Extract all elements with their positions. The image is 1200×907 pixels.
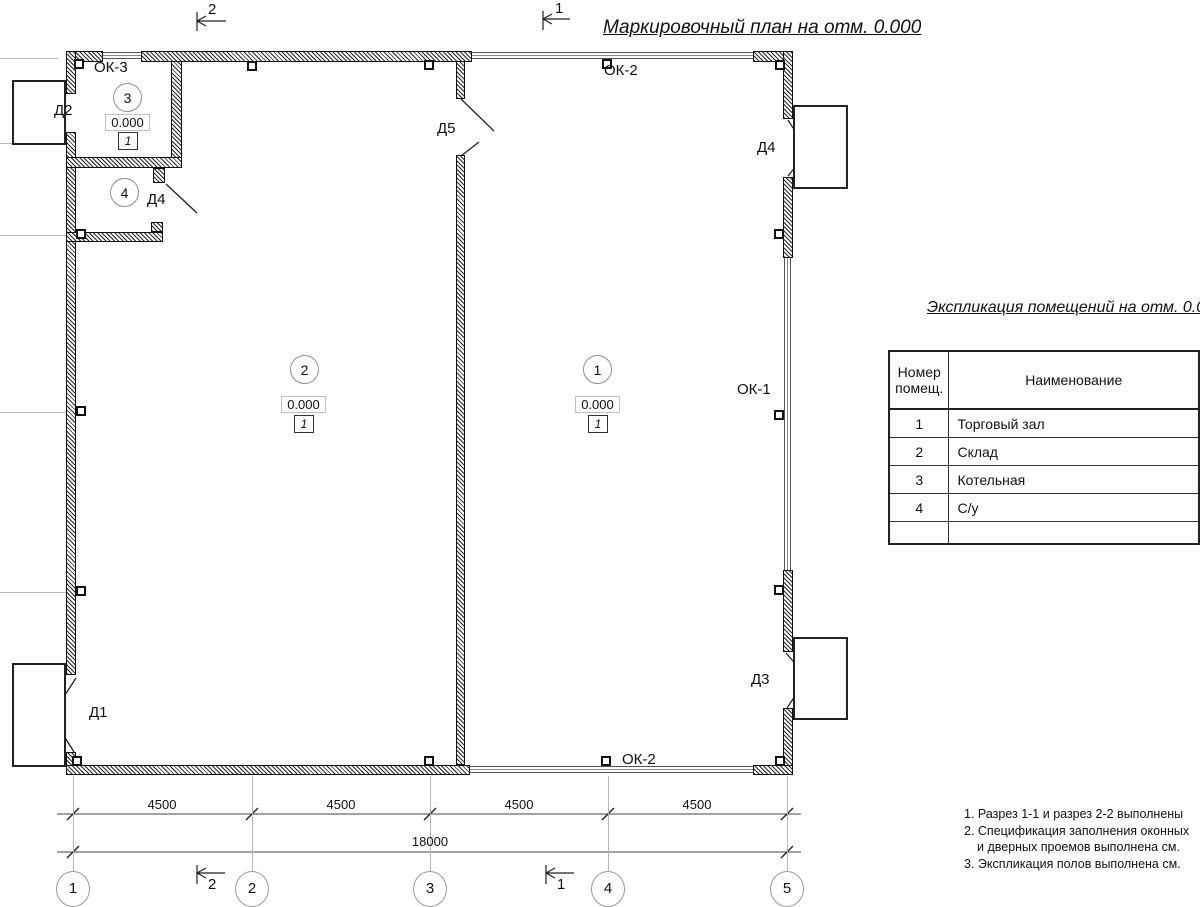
schedule-title: Экспликация помещений на отм. 0.000 bbox=[927, 299, 1200, 317]
dimension-bay-3: 4500 bbox=[505, 797, 534, 812]
window-label-ok2-top: ОК-2 bbox=[604, 62, 638, 79]
grid-extension-1 bbox=[73, 776, 74, 871]
note-line: 1. Разрез 1-1 и разрез 2-2 выполнены bbox=[964, 806, 1189, 823]
porch-d4 bbox=[793, 105, 848, 189]
column-marker bbox=[76, 229, 86, 239]
note-line: 2. Спецификация заполнения оконных bbox=[964, 823, 1189, 840]
floor-type-mark-room2: 1 bbox=[294, 415, 314, 433]
window-label-ok3: ОК-3 bbox=[94, 59, 128, 76]
window-label-ok2-bottom: ОК-2 bbox=[622, 751, 656, 768]
grid-extension-5 bbox=[787, 776, 788, 871]
column-marker bbox=[775, 60, 785, 70]
wall-bottom-1 bbox=[66, 765, 470, 775]
window-ok2-top bbox=[472, 52, 753, 59]
porch-d3 bbox=[793, 637, 848, 720]
door-label-d2: Д2 bbox=[54, 102, 73, 119]
room-number-circle-3: 3 bbox=[113, 83, 142, 112]
column-marker bbox=[774, 229, 784, 239]
elevation-mark-room2: 0.000 bbox=[281, 396, 326, 413]
grid-bubble-1: 1 bbox=[56, 871, 90, 907]
dimension-total: 18000 bbox=[412, 834, 448, 849]
header-number-line1: Номер bbox=[898, 364, 941, 380]
column-marker bbox=[774, 585, 784, 595]
note-line: 3. Экспликация полов выполнена см. bbox=[964, 856, 1189, 873]
grid-bubble-4: 4 bbox=[591, 871, 625, 907]
window-ok3 bbox=[103, 52, 141, 59]
section-number-top-1: 1 bbox=[555, 0, 563, 17]
schedule-row: 4 С/у bbox=[889, 494, 1199, 522]
grid-bubble-5: 5 bbox=[770, 871, 804, 907]
schedule-row: 3 Котельная bbox=[889, 466, 1199, 494]
column-marker bbox=[774, 410, 784, 420]
room-number-circle-2: 2 bbox=[290, 355, 319, 384]
dimension-bay-2: 4500 bbox=[327, 797, 356, 812]
column-marker bbox=[775, 756, 785, 766]
schedule-cell-num: 1 bbox=[889, 409, 949, 438]
wall-partition-mid-2 bbox=[456, 155, 465, 765]
door-label-d4-right: Д4 bbox=[757, 139, 776, 156]
column-marker bbox=[72, 756, 82, 766]
note-line: и дверных проемов выполнена см. bbox=[964, 839, 1189, 856]
column-marker bbox=[601, 756, 611, 766]
room-number-circle-1: 1 bbox=[583, 355, 612, 384]
schedule-cell-num: 3 bbox=[889, 466, 949, 494]
schedule-row: 2 Склад bbox=[889, 438, 1199, 466]
wall-room4-door-jamb-top bbox=[153, 168, 165, 183]
porch-d1 bbox=[12, 663, 66, 767]
grid-extension-4 bbox=[608, 776, 609, 871]
window-ok2-bottom bbox=[470, 766, 753, 773]
schedule-empty-row bbox=[889, 522, 1199, 545]
wall-partition-mid-1 bbox=[456, 61, 465, 99]
column-marker bbox=[76, 406, 86, 416]
wall-right-2 bbox=[783, 177, 793, 258]
column-marker bbox=[247, 61, 257, 71]
wall-right-3 bbox=[783, 570, 793, 652]
schedule-cell-num: 2 bbox=[889, 438, 949, 466]
drawing-title: Маркировочный план на отм. 0.000 bbox=[603, 17, 921, 39]
door-label-d1: Д1 bbox=[89, 704, 108, 721]
dimension-bay-4: 4500 bbox=[683, 797, 712, 812]
wall-left-2 bbox=[66, 132, 76, 675]
axis-line-left-d bbox=[0, 592, 66, 593]
dimension-bay-1: 4500 bbox=[148, 797, 177, 812]
schedule-cell-name: Торговый зал bbox=[949, 409, 1199, 438]
axis-line-left-a bbox=[0, 143, 12, 144]
section-number-bottom-1: 1 bbox=[557, 876, 565, 893]
axis-line-left-top bbox=[0, 58, 58, 59]
door-swing-d4-room4 bbox=[166, 184, 197, 213]
grid-bubble-3: 3 bbox=[413, 871, 447, 907]
schedule-cell-name: Склад bbox=[949, 438, 1199, 466]
wall-left-1 bbox=[66, 51, 76, 94]
section-marks bbox=[197, 11, 574, 884]
room-schedule-table: Номер помещ. Наименование 1 Торговый зал… bbox=[888, 350, 1200, 545]
window-label-ok1: ОК-1 bbox=[737, 381, 771, 398]
column-marker bbox=[76, 586, 86, 596]
grid-extension-2 bbox=[252, 776, 253, 871]
header-number-line2: помещ. bbox=[895, 380, 943, 396]
floor-type-mark-room3: 1 bbox=[118, 132, 138, 150]
door-label-d5: Д5 bbox=[437, 120, 456, 137]
wall-top-2 bbox=[141, 51, 472, 62]
floor-type-mark-room1: 1 bbox=[588, 415, 608, 433]
elevation-mark-room3: 0.000 bbox=[105, 114, 150, 131]
door-label-d4-room4: Д4 bbox=[147, 191, 166, 208]
room-number-circle-4: 4 bbox=[110, 178, 139, 207]
section-number-top-2: 2 bbox=[208, 1, 216, 18]
axis-line-left-c bbox=[0, 412, 66, 413]
axis-line-left-b bbox=[0, 235, 66, 236]
floor-plan-page: { "title": "Маркировочный план на отм. 0… bbox=[0, 0, 1200, 900]
drawing-notes: 1. Разрез 1-1 и разрез 2-2 выполнены 2. … bbox=[964, 806, 1189, 872]
wall-room3-right bbox=[171, 61, 182, 168]
grid-bubble-2: 2 bbox=[235, 871, 269, 907]
door-swing-d5 bbox=[461, 99, 494, 156]
schedule-cell-name: Котельная bbox=[949, 466, 1199, 494]
wall-bottom-2 bbox=[753, 765, 793, 775]
wall-room4-door-jamb-bottom bbox=[151, 222, 163, 232]
grid-extension-3 bbox=[430, 776, 431, 871]
schedule-header-number: Номер помещ. bbox=[889, 351, 949, 409]
schedule-cell-name: С/у bbox=[949, 494, 1199, 522]
window-ok1 bbox=[784, 258, 791, 570]
column-marker bbox=[74, 59, 84, 69]
elevation-mark-room1: 0.000 bbox=[575, 396, 620, 413]
schedule-row: 1 Торговый зал bbox=[889, 409, 1199, 438]
wall-room3-bottom bbox=[66, 157, 182, 168]
column-marker bbox=[424, 60, 434, 70]
section-number-bottom-2: 2 bbox=[208, 876, 216, 893]
door-label-d3: Д3 bbox=[751, 671, 770, 688]
schedule-cell-num: 4 bbox=[889, 494, 949, 522]
schedule-header-row: Номер помещ. Наименование bbox=[889, 351, 1199, 409]
schedule-header-name: Наименование bbox=[949, 351, 1199, 409]
column-marker bbox=[424, 756, 434, 766]
